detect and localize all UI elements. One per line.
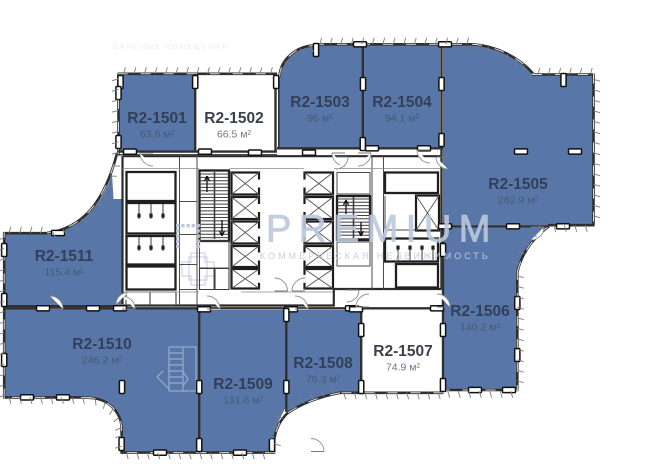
svg-text:R2-1505: R2-1505 — [488, 176, 548, 193]
svg-text:R2-1502: R2-1502 — [204, 110, 263, 127]
svg-text:КОММЕРЧЕСКАЯ НЕДВИЖИМОСТЬ: КОММЕРЧЕСКАЯ НЕДВИЖИМОСТЬ — [260, 251, 491, 261]
svg-text:R2-1504: R2-1504 — [372, 94, 432, 111]
svg-text:74.9 м²: 74.9 м² — [386, 362, 421, 374]
svg-text:R2-1511: R2-1511 — [35, 248, 94, 265]
svg-text:63.6 м²: 63.6 м² — [140, 129, 175, 141]
svg-text:ОФИСНЫЕ ПОМЕЩЕНИЯ: ОФИСНЫЕ ПОМЕЩЕНИЯ — [112, 44, 229, 51]
svg-text:76.3 м²: 76.3 м² — [306, 374, 341, 386]
svg-text:96 м²: 96 м² — [307, 113, 333, 125]
svg-text:262.9 м²: 262.9 м² — [498, 195, 538, 207]
svg-text:94.1 м²: 94.1 м² — [385, 113, 420, 125]
svg-text:R2-1506: R2-1506 — [450, 303, 510, 320]
svg-text:R2-1508: R2-1508 — [293, 355, 353, 372]
svg-text:PREMIUM: PREMIUM — [266, 209, 498, 251]
svg-text:R2-1501: R2-1501 — [127, 110, 187, 127]
svg-text:R2-1509: R2-1509 — [213, 376, 273, 393]
svg-text:R2-1503: R2-1503 — [290, 94, 350, 111]
svg-text:131.6 м²: 131.6 м² — [223, 395, 263, 407]
svg-text:140.2 м²: 140.2 м² — [460, 322, 500, 334]
svg-text:R2-1510: R2-1510 — [72, 336, 131, 353]
svg-text:115.4 м²: 115.4 м² — [44, 267, 84, 279]
svg-text:R2-1507: R2-1507 — [373, 343, 432, 360]
svg-text:246.2 м²: 246.2 м² — [82, 355, 122, 367]
svg-text:66.5 м²: 66.5 м² — [217, 129, 252, 141]
